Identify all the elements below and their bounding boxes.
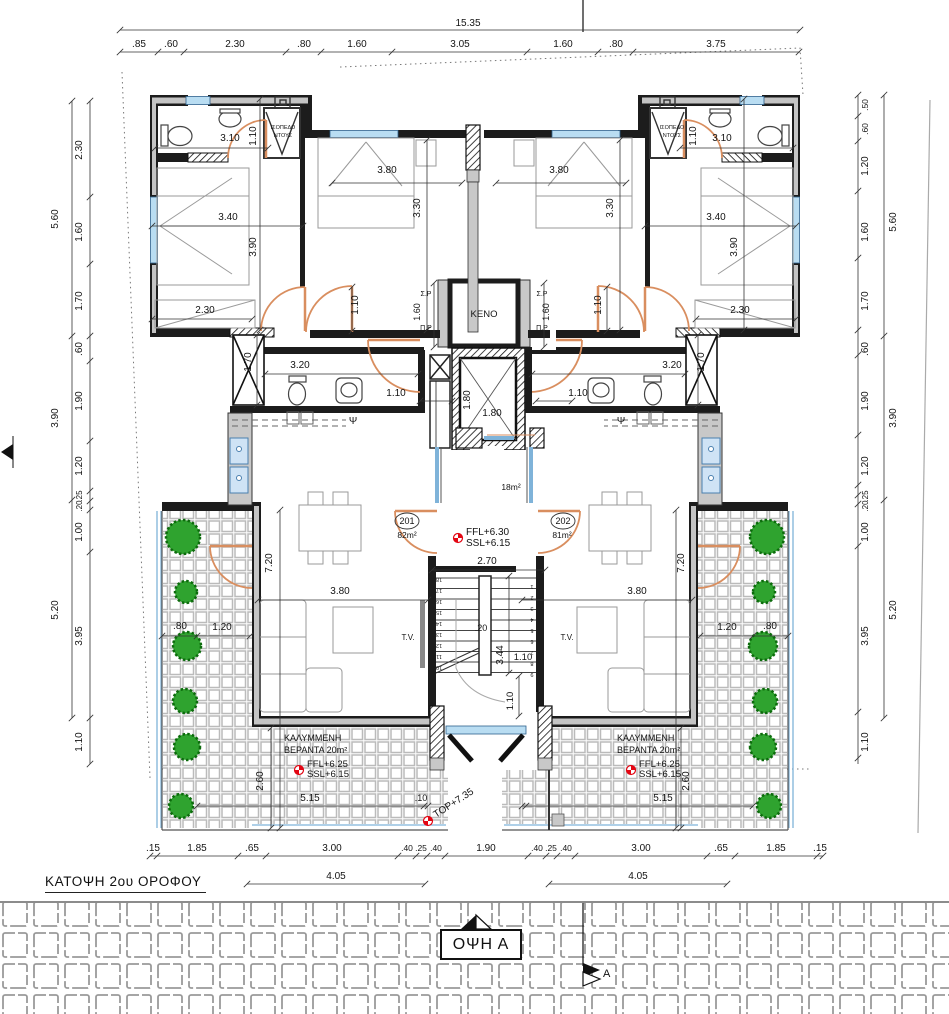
dim-label: 15.35 [455, 18, 480, 29]
stair-step-number: 10 [436, 664, 442, 670]
balcony-tiles [163, 511, 252, 828]
dim-label: 1.20 [212, 622, 232, 633]
dim-label: 1.70 [74, 291, 85, 311]
dim-label: 5.15 [653, 793, 673, 804]
dim-label: 3.20 [290, 360, 310, 371]
dim-label: 1.00 [860, 522, 871, 542]
dim-label: 1.90 [74, 391, 85, 411]
stair-step-number: 4 [530, 616, 533, 622]
dim-label: .60 [860, 123, 870, 135]
dim-label: 1.10 [505, 692, 516, 711]
dim-label: 3.90 [888, 408, 899, 428]
stair-window [446, 726, 526, 734]
room-label: ΙΣΟΠΕΔΟ [660, 125, 685, 131]
dim-label: 1.60 [412, 303, 422, 321]
dim-label: .80 [609, 39, 623, 50]
stair-step-number: 15 [436, 609, 442, 615]
stair-step-number: 1 [530, 583, 533, 589]
dim-label: 1.60 [347, 39, 367, 50]
stair-step-number: 11 [436, 653, 442, 659]
level-label: FFL+6.30 [466, 527, 510, 538]
stair-step-number: 2 [530, 594, 533, 600]
dim-label: 3.10 [712, 133, 732, 144]
dim-label: 2.60 [255, 771, 266, 791]
apartment-number: 201 [399, 516, 414, 526]
dim-label: 1.70 [860, 291, 871, 311]
dim-label: .80 [173, 621, 187, 632]
column [430, 706, 444, 760]
dim-label: 3.30 [605, 198, 616, 218]
floor-plan-drawing: 15.35.85.602.30.801.603.051.60.803.755.6… [0, 0, 949, 1014]
dim-label: 2.30 [74, 140, 85, 160]
dim-label: 5.15 [300, 793, 320, 804]
dim-label: .50 [860, 99, 870, 111]
level-marker-icon [295, 766, 304, 775]
dim-label: 1.10 [248, 126, 259, 146]
dim-label: .10 [415, 793, 428, 803]
level-label: SSL+6.15 [466, 538, 511, 549]
stair-step-number: 12 [436, 642, 442, 648]
room-label: ΒΕΡΑΝΤΑ 20m² [617, 745, 680, 755]
dim-label: .80 [763, 621, 777, 632]
dim-label: .40 [531, 843, 543, 853]
dim-label: 1.00 [74, 522, 85, 542]
dim-label: 7.20 [676, 553, 687, 573]
room-label: T.V. [401, 633, 414, 642]
dim-label: 1.10 [350, 295, 361, 315]
dim-label: .85 [132, 39, 146, 50]
dim-label: 1.10 [860, 732, 871, 752]
dim-label: 3.40 [706, 212, 726, 223]
room-label: ΝΤΟΥΣ [663, 133, 682, 139]
floor-plan-sheet: 15.35.85.602.30.801.603.051.60.803.755.6… [0, 0, 949, 1014]
dim-label: .80 [297, 39, 311, 50]
level-marker-icon [424, 817, 433, 826]
dim-label: 1.20 [74, 456, 85, 476]
dim-label: 1.20 [717, 622, 737, 633]
dim-label: 3.80 [377, 165, 397, 176]
stair-step-number: 8 [530, 660, 533, 666]
dim-label: 1.10 [688, 126, 699, 146]
north-reference-arrow-icon [1, 444, 13, 460]
dim-label: 3.90 [248, 237, 259, 257]
dim-label: 3.20 [662, 360, 682, 371]
dim-label: 1.70 [243, 352, 254, 372]
dim-label: 3.80 [549, 165, 569, 176]
dim-label: 1.10 [568, 388, 588, 399]
dim-label: 2.30 [225, 39, 245, 50]
dim-label: .25 [861, 490, 870, 502]
dim-label: 3.90 [50, 408, 61, 428]
dim-label: .65 [714, 843, 728, 854]
room-label: Π.Ρ [536, 325, 548, 332]
room-label: Σ.Ρ [421, 291, 432, 298]
dim-label: .40 [430, 843, 442, 853]
veranda-tiles [252, 727, 448, 824]
dim-label: 1.90 [476, 843, 496, 854]
stair-step-number: 17 [436, 587, 442, 593]
dim-label: 3.10 [220, 133, 240, 144]
dim-label: 3.44 [495, 645, 506, 665]
room-label: ΚΕΝΟ [471, 309, 498, 320]
stair-step-number: 14 [436, 620, 442, 626]
window-glazing [151, 97, 399, 264]
dim-label: 3.00 [631, 843, 651, 854]
room-label: ΚΑΛΥΜΜΕΝΗ [617, 733, 674, 743]
dim-label: 1.10 [386, 388, 406, 399]
site-boundary-line [918, 100, 930, 833]
dim-label: .20 [861, 500, 870, 512]
room-label: Ψ [617, 416, 625, 427]
hatched-wall [188, 153, 228, 162]
party-wall [536, 556, 544, 718]
dim-label: 1.20 [860, 456, 871, 476]
dim-label: 1.60 [860, 222, 871, 242]
dim-label: 5.20 [50, 600, 61, 620]
dim-label: 1.20 [860, 156, 871, 176]
room-label: T.V. [560, 633, 573, 642]
dim-label: 1.90 [860, 391, 871, 411]
dim-label: 1.10 [74, 732, 85, 752]
room-label: ΚΑΛΥΜΜΕΝΗ [284, 733, 341, 743]
column [538, 706, 552, 760]
dim-label: 4.05 [628, 871, 648, 882]
dim-label: 4.05 [326, 871, 346, 882]
dim-label: 1.60 [553, 39, 573, 50]
room-label: Ψ [349, 416, 357, 427]
stair-step-number: 3 [530, 605, 533, 611]
dim-label: 2.30 [195, 305, 215, 316]
dim-label: .65 [245, 843, 259, 854]
dim-label: .60 [164, 39, 178, 50]
apartment-number: 202 [555, 516, 570, 526]
tv-unit [420, 600, 425, 668]
room-label: ΝΤΟΥΣ [274, 133, 293, 139]
stair-step-number: 7 [530, 649, 533, 655]
dim-label: .40 [560, 843, 572, 853]
section-letter: A [603, 968, 610, 980]
apartment-area: 82m² [397, 530, 417, 540]
dim-label: .60 [860, 342, 871, 356]
dim-label: .25 [75, 490, 84, 502]
level-label: SSL+6.15 [639, 769, 681, 780]
apartment-area: 81m² [552, 530, 572, 540]
dim-label: 2.70 [477, 556, 497, 567]
room-label: ΒΕΡΑΝΤΑ 20m² [284, 745, 347, 755]
dim-label: 3.95 [860, 626, 871, 646]
elevation-label: ΟΨΗ Α [440, 929, 522, 960]
dim-label: 2.60 [681, 771, 692, 791]
dim-label: 5.20 [888, 600, 899, 620]
room-label: 18m² [501, 482, 521, 492]
dim-label: 1.60 [541, 303, 551, 321]
dim-label: .20 [475, 623, 488, 633]
stair-step-number: 13 [436, 631, 442, 637]
level-marker-icon [627, 766, 636, 775]
dim-label: .25 [415, 843, 427, 853]
dim-label: 3.05 [450, 39, 470, 50]
dim-label: 1.60 [74, 222, 85, 242]
stair-step-number: 16 [436, 598, 442, 604]
dim-label: 3.95 [74, 626, 85, 646]
dim-label: 3.90 [729, 237, 740, 257]
dim-label: .25 [545, 843, 557, 853]
room-label: ΙΣΟΠΕΔΟ [271, 125, 296, 131]
dim-label: .15 [146, 843, 160, 854]
dim-label: 3.40 [218, 212, 238, 223]
dim-label: 3.00 [322, 843, 342, 854]
dim-label: 3.30 [412, 198, 423, 218]
dim-label: .40 [401, 843, 413, 853]
dim-label: 2.30 [730, 305, 750, 316]
room-label: Σ.Ρ [537, 291, 548, 298]
level-marker-icon [454, 534, 463, 543]
column [466, 125, 480, 170]
dim-label: 1.80 [482, 408, 502, 419]
dim-label: .60 [74, 342, 85, 356]
dim-label: 3.75 [706, 39, 726, 50]
duct-shafts [430, 355, 450, 448]
dim-label: 1.10 [593, 295, 604, 315]
dim-label: 1.10 [514, 652, 533, 663]
dim-label: 5.60 [50, 209, 61, 229]
stair-step-number: 5 [530, 627, 533, 633]
dim-label: 1.70 [696, 352, 707, 372]
dim-label: 1.85 [766, 843, 786, 854]
dim-label: 1.80 [462, 390, 473, 410]
level-label: SSL+6.15 [307, 769, 349, 780]
stair-step-number: 18 [436, 576, 442, 582]
stair-step-number: 9 [530, 671, 533, 677]
dim-label: 5.60 [888, 212, 899, 232]
party-wall [428, 556, 436, 718]
dim-label: 7.20 [264, 553, 275, 573]
dim-label: 1.85 [187, 843, 207, 854]
dim-label: .20 [75, 500, 84, 512]
dim-label: 3.80 [627, 586, 647, 597]
room-label: Π.Ρ [420, 325, 432, 332]
stair-step-number: 6 [530, 638, 533, 644]
dim-label: 3.80 [330, 586, 350, 597]
dim-label: .15 [813, 843, 827, 854]
plan-title: ΚΑΤΟΨΗ 2ου ΟΡΟΦΟΥ [45, 874, 206, 893]
